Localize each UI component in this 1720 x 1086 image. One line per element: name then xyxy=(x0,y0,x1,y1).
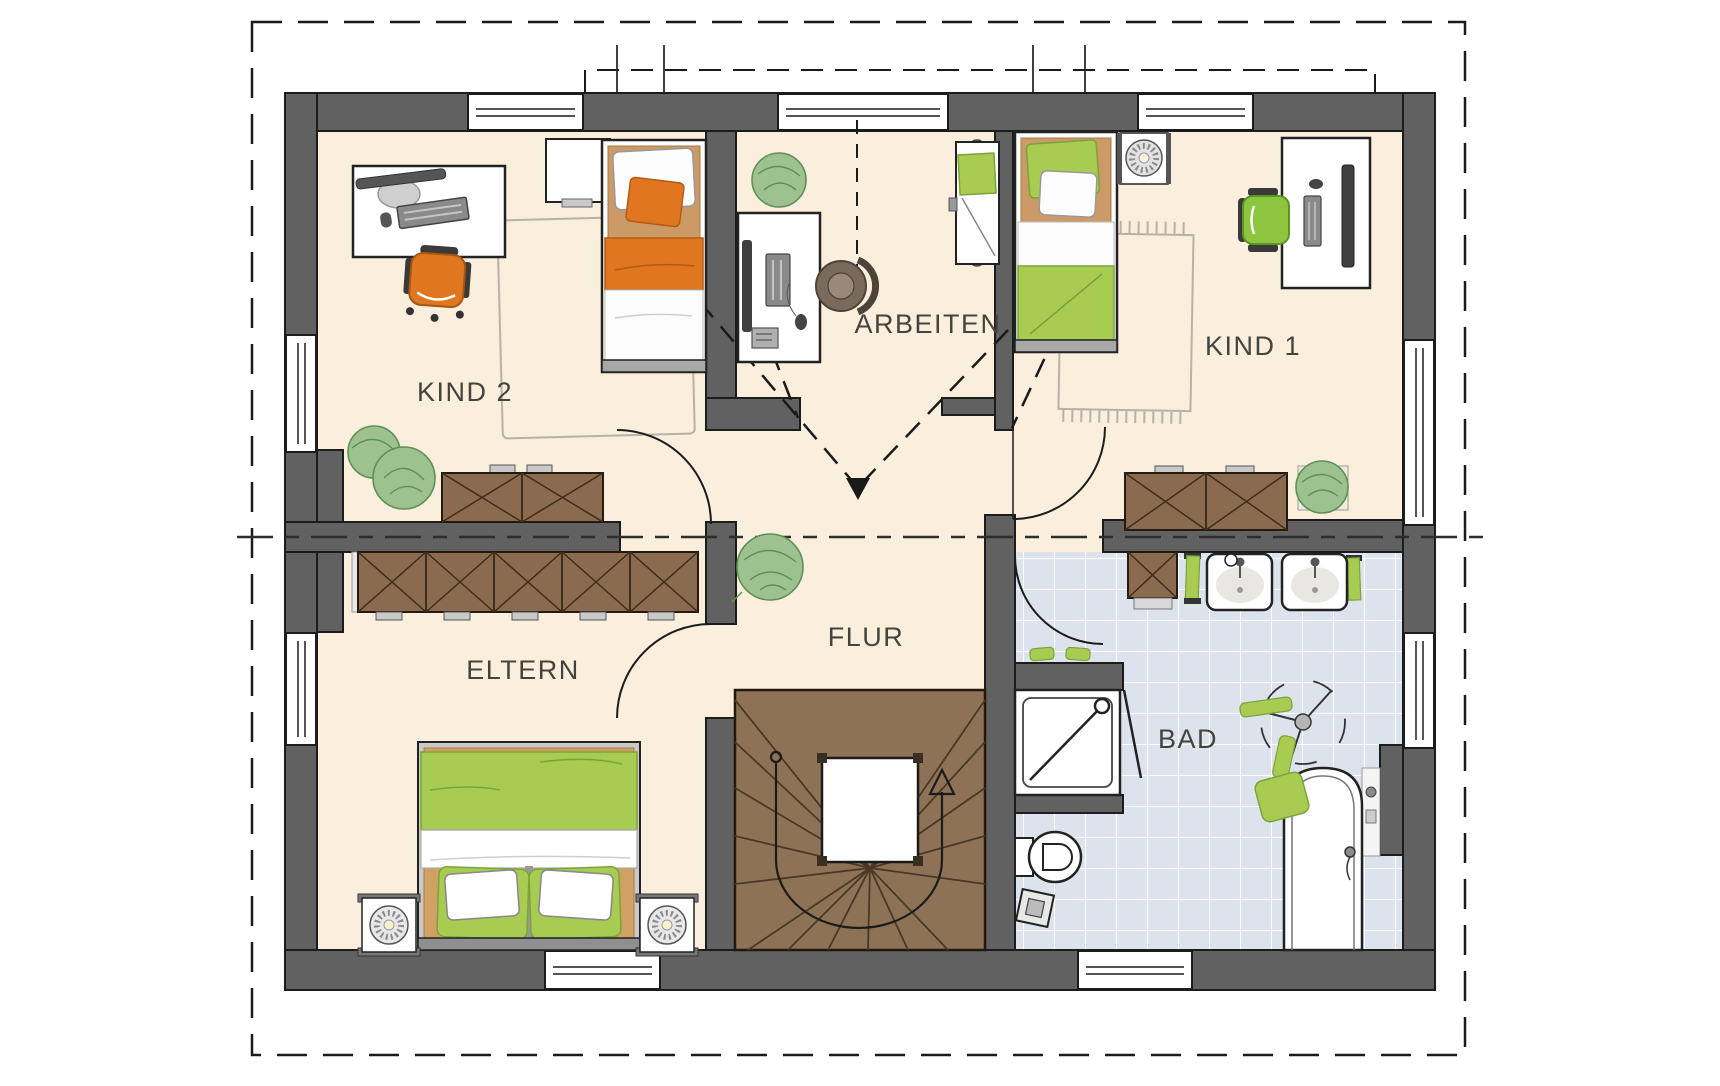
bedside-lamp-icon xyxy=(358,894,420,956)
room-label-kind2: KIND 2 xyxy=(417,377,513,407)
stair-icon xyxy=(735,690,985,950)
room-label-flur: FLUR xyxy=(828,622,905,652)
office-chair-icon xyxy=(816,260,876,312)
floorplan-drawing: KIND 2 ARBEITEN KIND 1 ELTERN FLUR BAD xyxy=(0,0,1720,1086)
floorplan-canvas: KIND 2 ARBEITEN KIND 1 ELTERN FLUR BAD xyxy=(0,0,1720,1086)
desk-icon xyxy=(1282,138,1370,288)
room-label-bad: BAD xyxy=(1158,724,1218,754)
room-label-kind1: KIND 1 xyxy=(1205,331,1301,361)
room-label-arbeiten: ARBEITEN xyxy=(854,309,1001,339)
single-bed-icon xyxy=(602,140,706,372)
toilet-icon xyxy=(1015,832,1081,882)
washbasin-icon xyxy=(1207,554,1272,610)
folding-bed-icon xyxy=(949,140,999,266)
wardrobe-icon xyxy=(1128,552,1177,609)
wardrobe-icon xyxy=(352,552,698,620)
wall-fan-icon xyxy=(1117,133,1171,184)
plant-icon xyxy=(752,153,806,207)
desk-icon xyxy=(353,166,505,257)
plant-icon xyxy=(1296,461,1348,513)
room-label-eltern: ELTERN xyxy=(466,655,580,685)
bath-scale-icon xyxy=(1016,889,1054,927)
sideboard-icon xyxy=(1125,466,1287,530)
bedside-lamp-icon xyxy=(636,894,698,956)
washbasin-icon xyxy=(1282,554,1347,610)
single-bed-icon xyxy=(1015,132,1117,352)
desk-icon xyxy=(738,213,820,362)
nightstand-icon xyxy=(546,139,610,207)
double-bed-icon xyxy=(418,742,640,950)
wardrobe-icon xyxy=(442,465,603,522)
